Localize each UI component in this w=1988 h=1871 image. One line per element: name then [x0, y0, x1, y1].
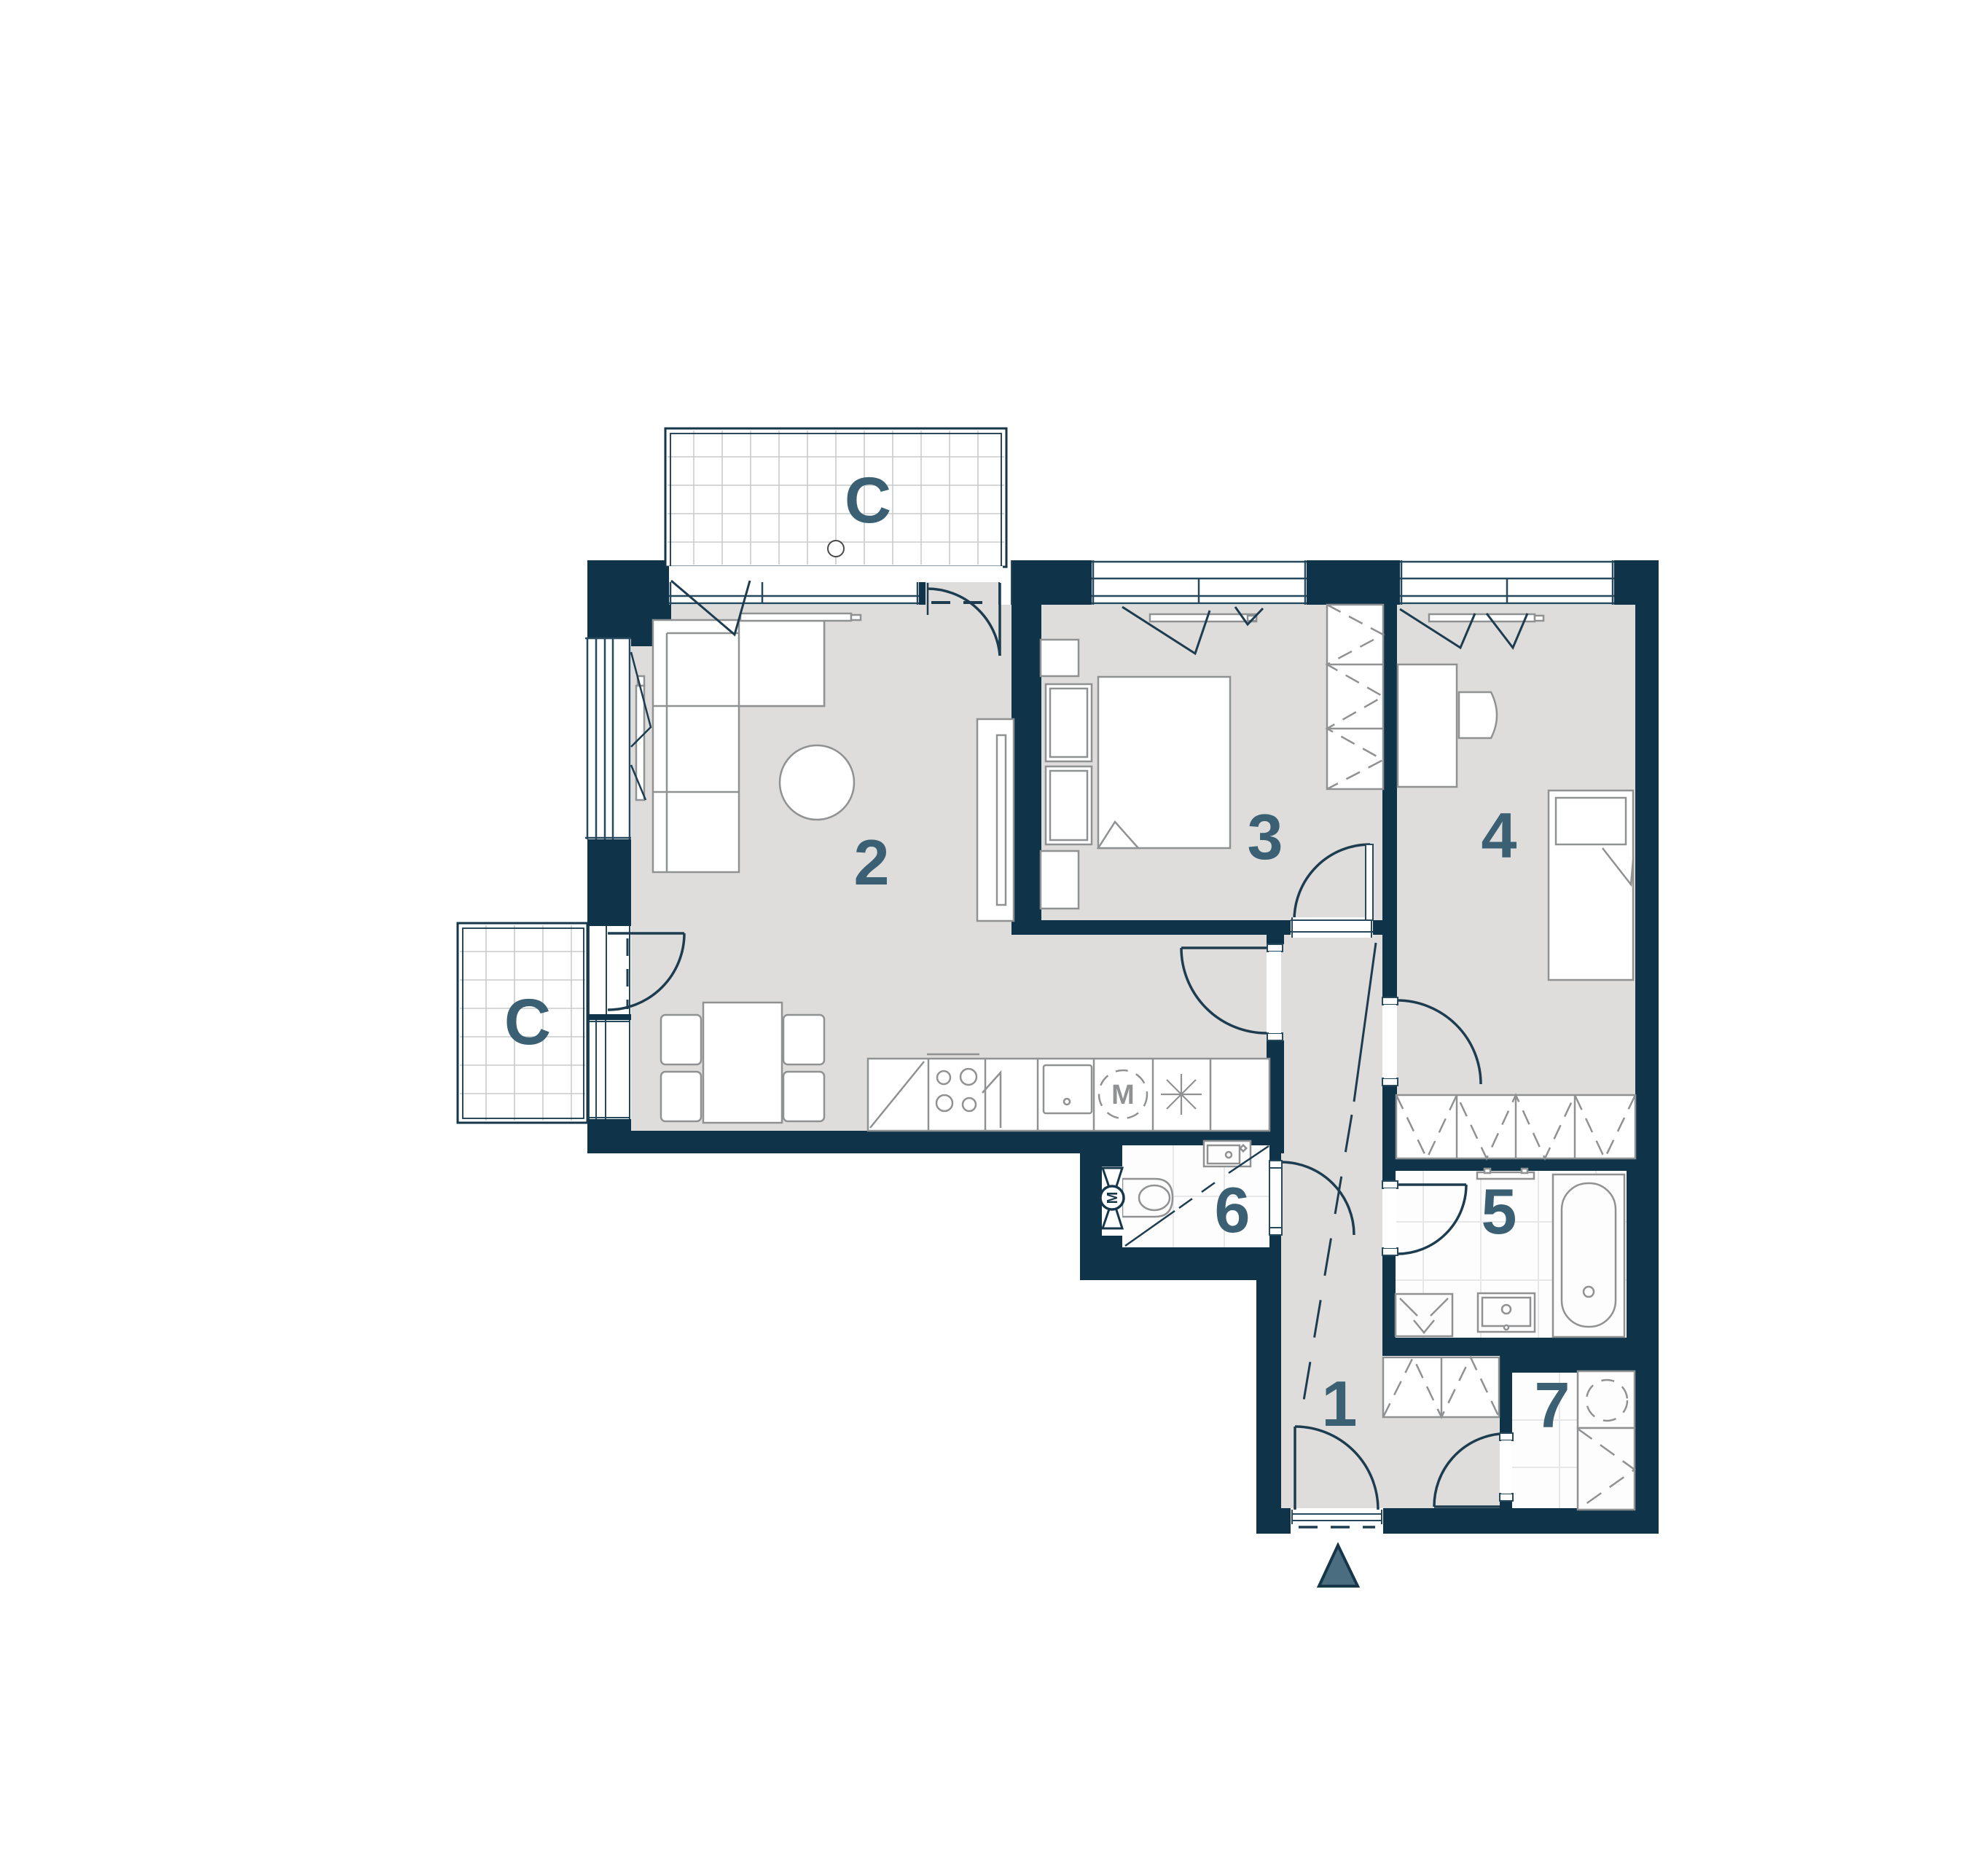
- svg-text:2: 2: [854, 826, 890, 898]
- svg-text:7: 7: [1535, 1369, 1570, 1441]
- svg-text:C: C: [845, 463, 891, 536]
- svg-text:4: 4: [1482, 799, 1517, 871]
- svg-text:M: M: [1111, 1080, 1135, 1110]
- svg-text:3: 3: [1248, 801, 1283, 873]
- svg-text:5: 5: [1482, 1175, 1517, 1247]
- svg-text:1: 1: [1322, 1368, 1358, 1440]
- svg-text:6: 6: [1215, 1174, 1251, 1246]
- svg-text:M: M: [1105, 1192, 1121, 1204]
- svg-text:C: C: [504, 985, 551, 1058]
